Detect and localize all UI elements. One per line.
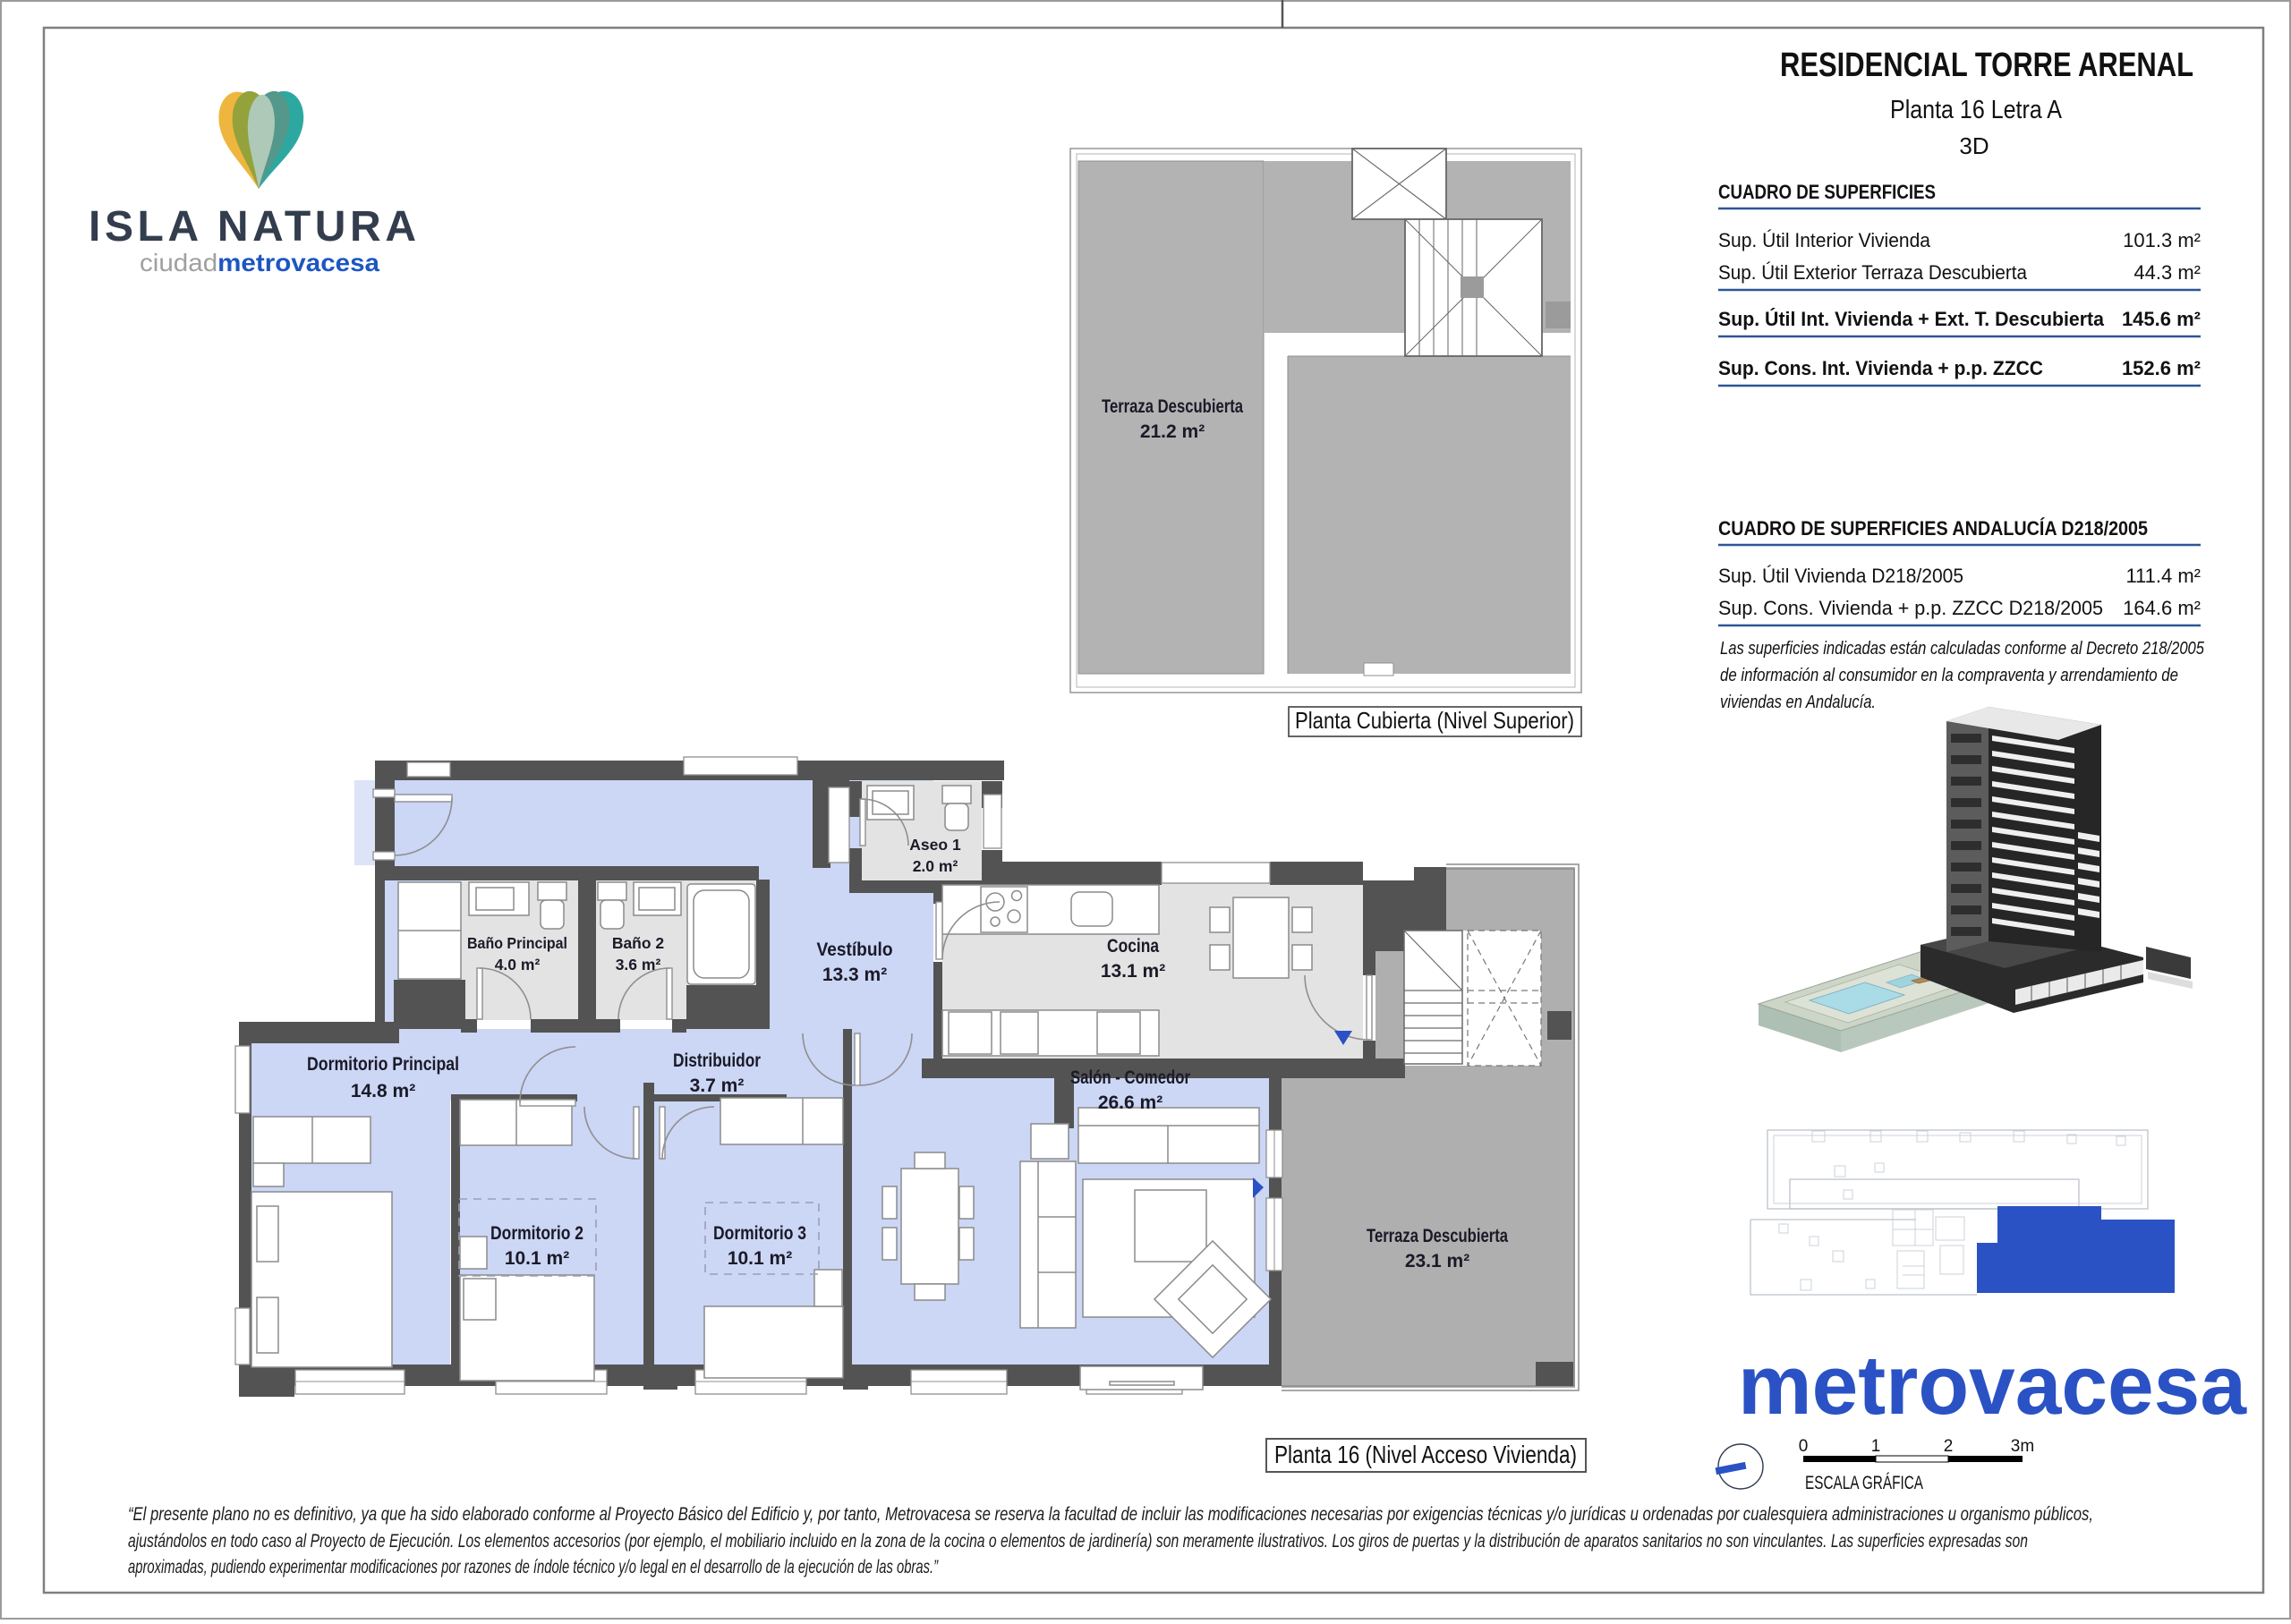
svg-text:23.1 m²: 23.1 m² — [1405, 1251, 1469, 1271]
svg-text:Las superficies indicadas está: Las superficies indicadas están calculad… — [1720, 639, 2205, 659]
svg-text:10.1 m²: 10.1 m² — [728, 1248, 792, 1269]
svg-text:CUADRO DE SUPERFICIES ANDALUCÍ: CUADRO DE SUPERFICIES ANDALUCÍA D218/200… — [1718, 517, 2148, 540]
svg-text:“El presente plano no es defin: “El presente plano no es definitivo, ya … — [128, 1504, 2093, 1525]
svg-text:14.8 m²: 14.8 m² — [351, 1081, 415, 1101]
svg-text:2.0 m²: 2.0 m² — [913, 857, 958, 875]
svg-text:Sup. Útil Int. Vivienda + Ext.: Sup. Útil Int. Vivienda + Ext. T. Descub… — [1718, 308, 2105, 330]
svg-text:3.6 m²: 3.6 m² — [616, 956, 661, 974]
svg-text:0: 0 — [1799, 1437, 1809, 1456]
svg-text:ESCALA GRÁFICA: ESCALA GRÁFICA — [1805, 1473, 1923, 1493]
svg-text:Sup. Cons. Int. Vivienda + p.p: Sup. Cons. Int. Vivienda + p.p. ZZCC — [1718, 357, 2043, 379]
svg-text:4.0 m²: 4.0 m² — [495, 956, 541, 974]
svg-text:ajustándolos en todo caso al P: ajustándolos en todo caso al Proyecto de… — [128, 1531, 2028, 1552]
svg-text:ciudadmetrovacesa: ciudadmetrovacesa — [140, 249, 379, 276]
svg-text:Distribuidor: Distribuidor — [673, 1050, 761, 1071]
svg-text:Sup. Útil Vivienda D218/2005: Sup. Útil Vivienda D218/2005 — [1718, 565, 1963, 587]
svg-text:3D: 3D — [1959, 132, 1989, 159]
svg-text:21.2 m²: 21.2 m² — [1140, 421, 1205, 442]
svg-text:13.3 m²: 13.3 m² — [822, 965, 887, 985]
svg-text:RESIDENCIAL TORRE ARENAL: RESIDENCIAL TORRE ARENAL — [1780, 47, 2193, 84]
svg-text:de información al consumidor e: de información al consumidor en la compr… — [1720, 666, 2178, 685]
svg-text:Vestíbulo: Vestíbulo — [817, 940, 893, 960]
svg-text:145.6 m²: 145.6 m² — [2122, 308, 2201, 330]
svg-text:Baño 2: Baño 2 — [612, 934, 665, 952]
svg-text:Dormitorio Principal: Dormitorio Principal — [307, 1054, 459, 1075]
svg-text:viviendas en Andalucía.: viviendas en Andalucía. — [1720, 693, 1876, 712]
svg-text:CUADRO DE SUPERFICIES: CUADRO DE SUPERFICIES — [1718, 181, 1936, 203]
svg-text:2: 2 — [1944, 1437, 1954, 1456]
svg-text:Planta 16 Letra A: Planta 16 Letra A — [1890, 96, 2063, 124]
svg-text:13.1 m²: 13.1 m² — [1101, 961, 1165, 982]
svg-text:152.6 m²: 152.6 m² — [2122, 357, 2201, 379]
svg-text:Terraza Descubierta: Terraza Descubierta — [1367, 1226, 1508, 1246]
svg-text:10.1 m²: 10.1 m² — [505, 1248, 569, 1269]
svg-text:metrovacesa: metrovacesa — [1738, 1338, 2247, 1432]
svg-text:ISLA NATURA: ISLA NATURA — [89, 203, 422, 251]
svg-text:Planta Cubierta (Nivel Superio: Planta Cubierta (Nivel Superior) — [1295, 707, 1574, 734]
svg-text:1: 1 — [1871, 1437, 1881, 1456]
svg-text:Salón - Comedor: Salón - Comedor — [1070, 1067, 1190, 1088]
svg-text:3.7 m²: 3.7 m² — [690, 1076, 745, 1096]
svg-text:Sup. Cons. Vivienda + p.p. ZZC: Sup. Cons. Vivienda + p.p. ZZCC D218/200… — [1718, 597, 2103, 619]
svg-text:Planta 16 (Nivel Acceso Vivien: Planta 16 (Nivel Acceso Vivienda) — [1274, 1441, 1577, 1468]
svg-text:Dormitorio 3: Dormitorio 3 — [713, 1223, 806, 1244]
svg-text:101.3 m²: 101.3 m² — [2123, 229, 2201, 251]
svg-text:aproximadas, pudiendo experime: aproximadas, pudiendo experimentar modif… — [128, 1557, 939, 1577]
svg-text:26.6 m²: 26.6 m² — [1098, 1093, 1163, 1113]
svg-text:Sup. Útil Exterior Terraza Des: Sup. Útil Exterior Terraza Descubierta — [1718, 261, 2028, 284]
svg-text:Terraza Descubierta: Terraza Descubierta — [1102, 396, 1243, 417]
svg-text:164.6 m²: 164.6 m² — [2123, 597, 2201, 619]
svg-text:Dormitorio 2: Dormitorio 2 — [490, 1223, 583, 1244]
svg-text:44.3 m²: 44.3 m² — [2133, 261, 2201, 284]
svg-text:Baño Principal: Baño Principal — [467, 934, 567, 952]
svg-text:Sup. Útil Interior Vivienda: Sup. Útil Interior Vivienda — [1718, 229, 1931, 251]
svg-text:Aseo 1: Aseo 1 — [909, 836, 961, 854]
svg-text:Cocina: Cocina — [1107, 936, 1159, 957]
svg-text:3m: 3m — [2011, 1437, 2034, 1456]
svg-text:111.4 m²: 111.4 m² — [2125, 565, 2201, 587]
